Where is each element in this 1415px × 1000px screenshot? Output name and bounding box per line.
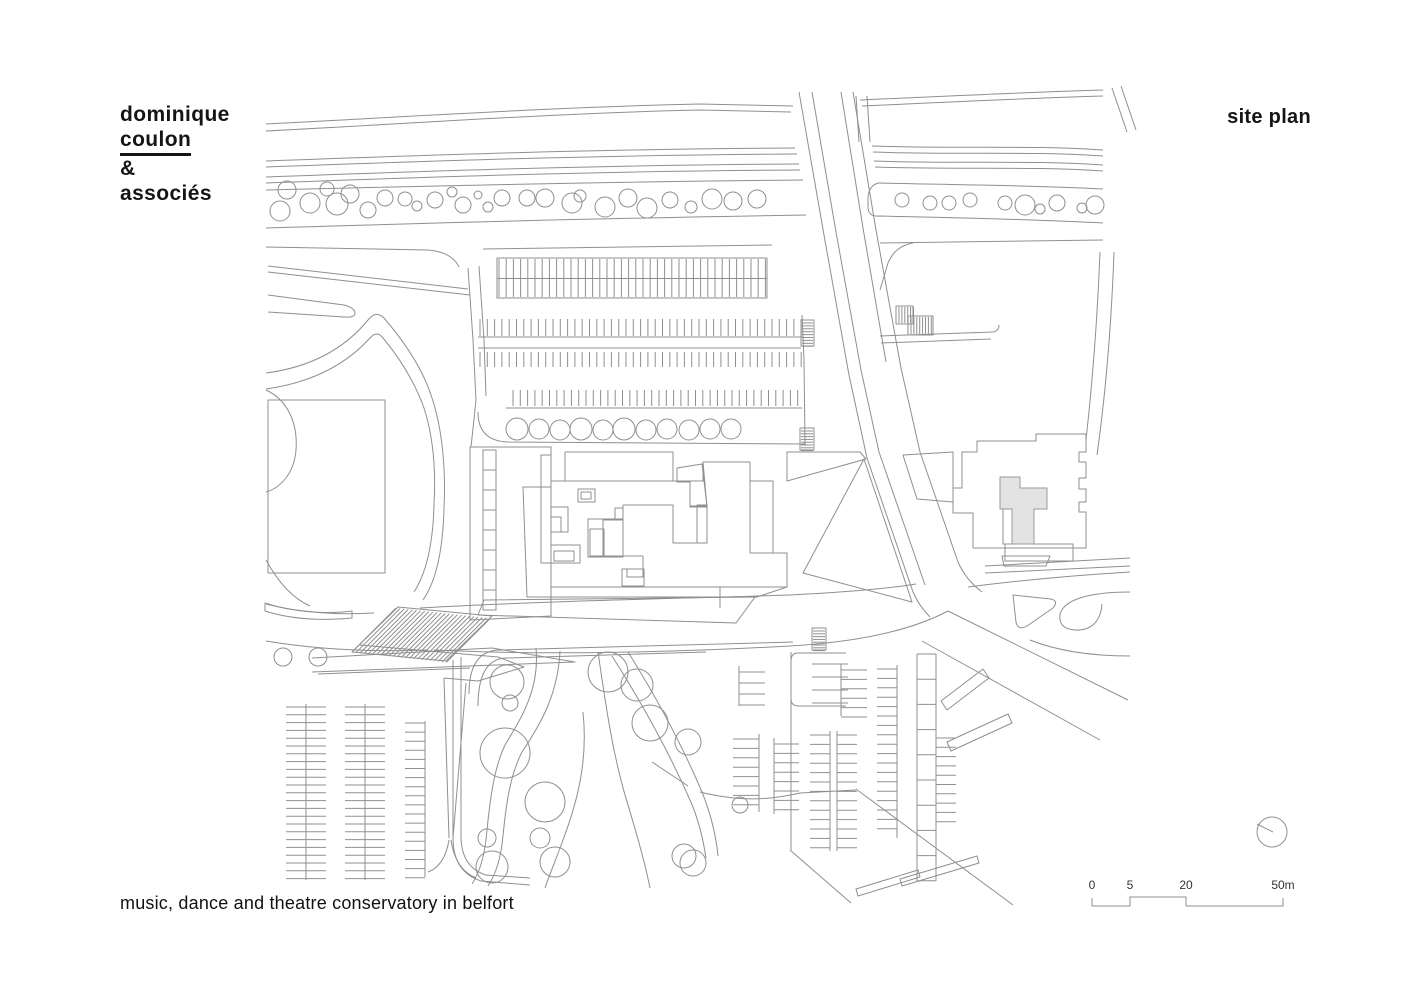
conservatory-building bbox=[551, 462, 787, 608]
site-plan-sheet: { "page": { "background": "#ffffff", "ki… bbox=[0, 0, 1415, 1000]
building-shadow-cross bbox=[1000, 477, 1047, 544]
parking-north bbox=[468, 245, 814, 451]
park-trees bbox=[476, 652, 748, 883]
courtyard-southwest bbox=[551, 545, 580, 563]
scale-tick-50m: 50m bbox=[1271, 878, 1294, 892]
firm-name-line2: coulon bbox=[120, 127, 230, 156]
park bbox=[469, 642, 1013, 905]
left-building bbox=[268, 400, 385, 573]
parking-south-west bbox=[274, 648, 385, 880]
north-arrow-icon bbox=[1257, 817, 1287, 847]
firm-name-line3: & bbox=[120, 156, 230, 181]
building-cast-shadow bbox=[523, 487, 787, 597]
south-east-structures bbox=[790, 628, 1012, 903]
scale-bar: 0 5 20 50m bbox=[1089, 878, 1295, 906]
drawing-label: site plan bbox=[1227, 106, 1311, 129]
top-tree-row bbox=[270, 181, 766, 221]
firm-name-line1: dominique bbox=[120, 102, 230, 127]
project-title: music, dance and theatre conservatory in… bbox=[120, 893, 514, 914]
mid-tree-row bbox=[506, 418, 741, 440]
firm-logo: dominique coulon & associés bbox=[120, 102, 230, 206]
courtyard-center bbox=[588, 519, 623, 557]
residential-building-east bbox=[953, 434, 1086, 561]
funnel-road bbox=[360, 645, 530, 885]
firm-name-line4: associés bbox=[120, 181, 230, 206]
top-tree-row-east bbox=[895, 193, 1104, 215]
courtyard-west bbox=[551, 507, 568, 532]
tower-shadow bbox=[677, 464, 707, 506]
scale-tick-5: 5 bbox=[1127, 878, 1134, 892]
skylight bbox=[578, 489, 595, 502]
scale-tick-0: 0 bbox=[1089, 878, 1096, 892]
scale-tick-20: 20 bbox=[1179, 878, 1193, 892]
west-roads bbox=[266, 247, 470, 651]
traffic-island bbox=[1013, 595, 1056, 628]
west-wall-strip bbox=[483, 450, 551, 610]
